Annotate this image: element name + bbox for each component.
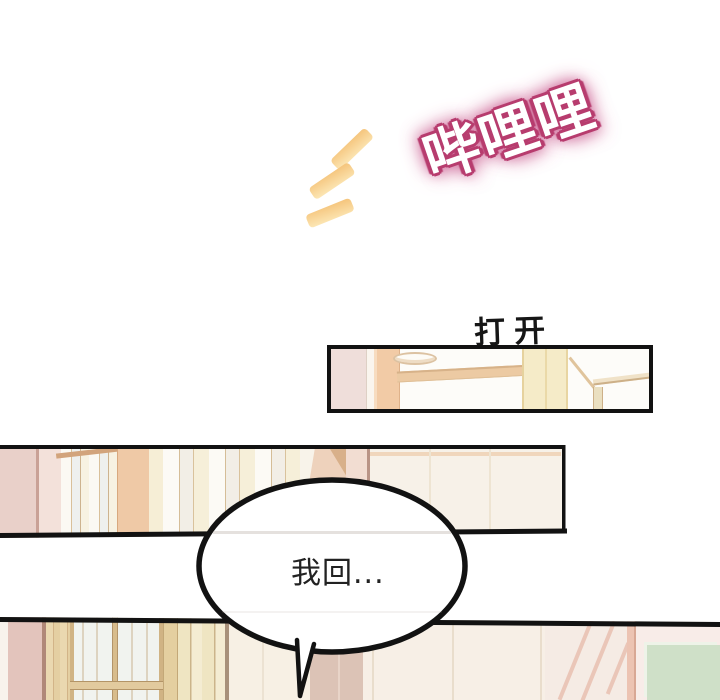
door-frame-column: [163, 617, 178, 700]
emphasis-dash-icon: [330, 127, 374, 170]
bubble-tail: [297, 640, 314, 696]
wall-strip: [366, 349, 374, 409]
border-showthrough-line: [222, 611, 442, 613]
wall-pink: [8, 617, 42, 700]
wall-pink: [331, 349, 366, 409]
pillar-cream: [149, 449, 163, 538]
railing-diagonal: [568, 357, 596, 391]
border-showthrough-line: [213, 531, 451, 534]
ceiling-light-icon: [393, 352, 437, 365]
railing-post: [593, 387, 603, 409]
mint-wall-panel: [647, 645, 720, 700]
wall-seam: [540, 617, 542, 700]
window-crossbar: [70, 681, 163, 690]
door-slats: [61, 449, 117, 538]
wall-light: [0, 617, 8, 700]
wall-tan: [117, 449, 149, 538]
sfx-text: 哔哩哩: [417, 78, 603, 190]
wood-beam: [397, 364, 533, 382]
trim-line: [370, 452, 561, 456]
pillar-line: [545, 349, 547, 409]
panel-ceiling: [327, 345, 653, 413]
wall-pink: [0, 449, 36, 538]
door-slats: [46, 617, 70, 700]
wall-light-pink: [39, 449, 61, 538]
comic-page: 哔哩哩 打开: [0, 0, 720, 700]
wall-pink-strip: [627, 617, 636, 700]
emphasis-dash-icon: [305, 198, 355, 229]
emphasis-dash-icon: [308, 162, 356, 200]
railing-beam: [593, 373, 650, 386]
dialogue-text: 我回...: [291, 548, 385, 592]
